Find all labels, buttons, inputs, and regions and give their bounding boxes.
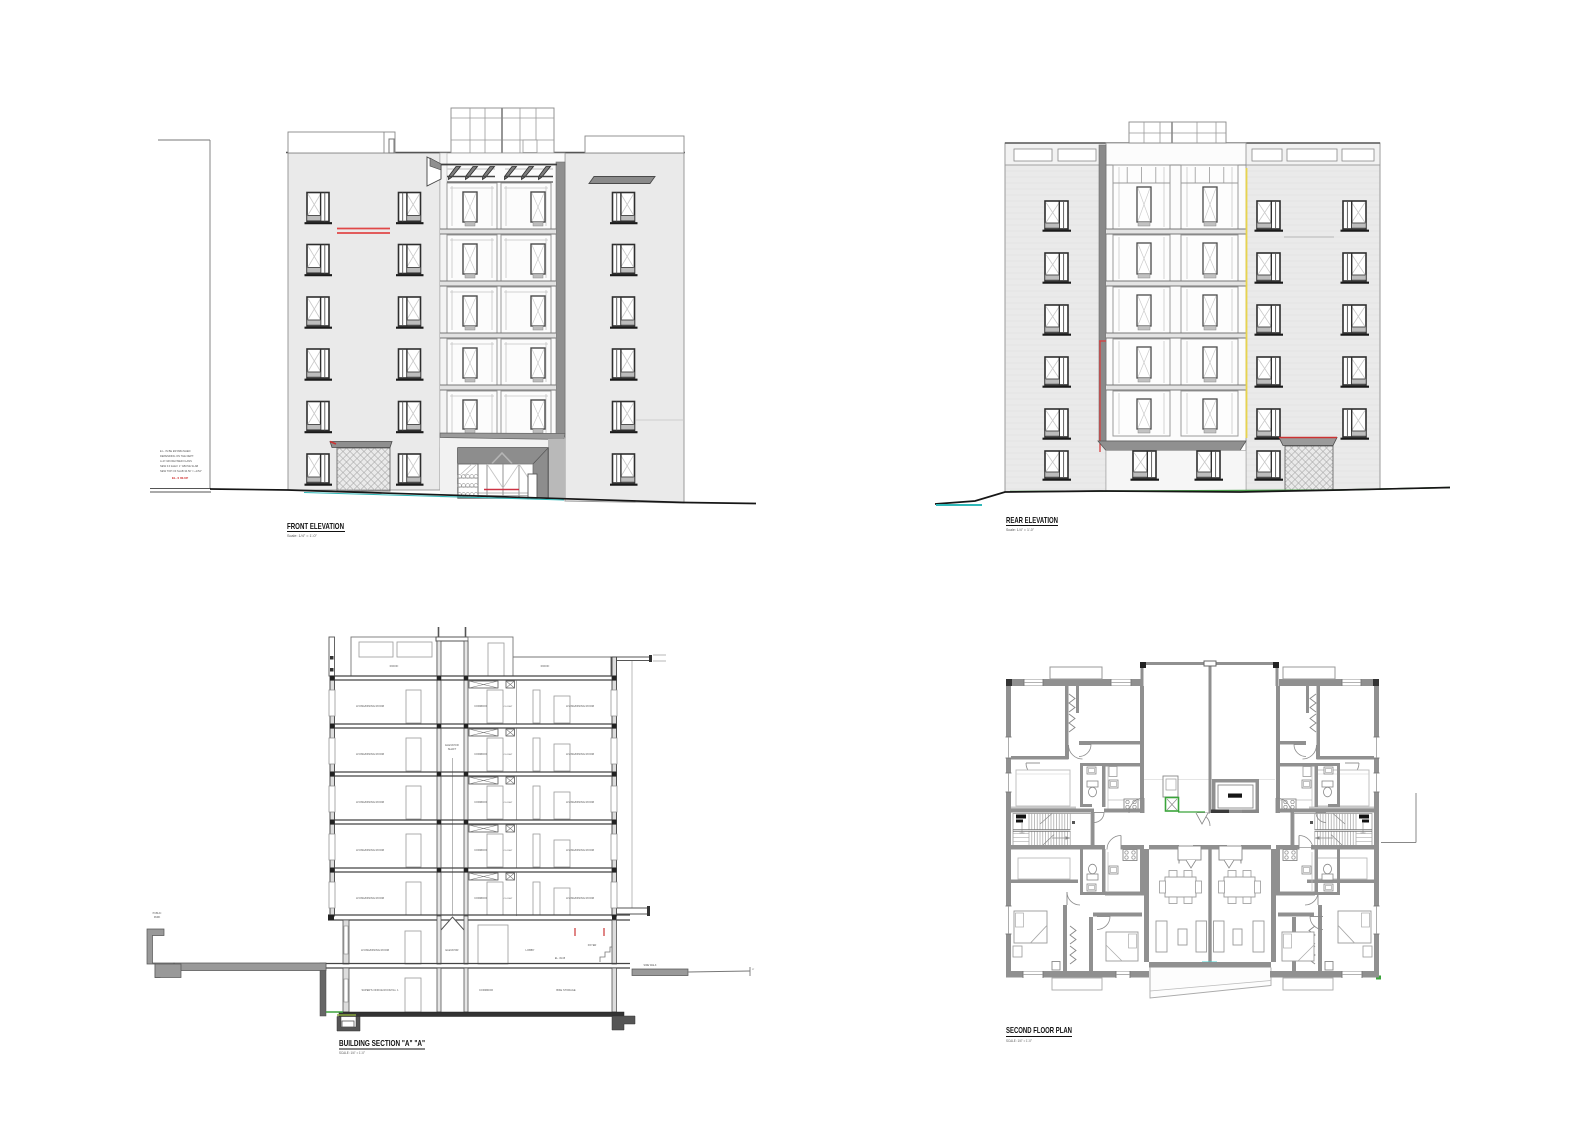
svg-text:FRONT ELEVATION: FRONT ELEVATION — [287, 522, 344, 531]
svg-text:SECOND FLOOR PLAN: SECOND FLOOR PLAN — [1006, 1026, 1072, 1035]
svg-text:SCALE: 1/4" = 1'-0": SCALE: 1/4" = 1'-0" — [339, 1051, 365, 1055]
svg-text:E.L. IN BE ESTABLISHED: E.L. IN BE ESTABLISHED — [160, 449, 191, 453]
svg-text:PUBLIC: PUBLIC — [153, 912, 162, 915]
svg-text:CORRIDOR: CORRIDOR — [474, 849, 488, 852]
svg-text:CORRIDOR: CORRIDOR — [474, 897, 488, 900]
svg-text:CORRIDOR: CORRIDOR — [474, 801, 488, 804]
svg-text:CORRIDOR: CORRIDOR — [474, 705, 488, 708]
svg-text:SIDE WALK: SIDE WALK — [644, 964, 657, 967]
svg-text:LIVING/DINING ROOM: LIVING/DINING ROOM — [566, 848, 595, 852]
svg-text:BUILDING SECTION "A" "A": BUILDING SECTION "A" "A" — [339, 1039, 425, 1048]
svg-text:LIVING/DINING ROOM: LIVING/DINING ROOM — [356, 800, 385, 804]
svg-text:LOBBY: LOBBY — [526, 948, 535, 952]
svg-text:LIVING/DINING ROOM: LIVING/DINING ROOM — [356, 896, 385, 900]
svg-text:LIVING/DINING ROOM: LIVING/DINING ROOM — [356, 848, 385, 852]
svg-text:A-27-946 REVISED FLANS: A-27-946 REVISED FLANS — [160, 459, 192, 463]
svg-text:LIVING/DINING ROOM: LIVING/DINING ROOM — [566, 752, 595, 756]
svg-text:LIVING/DINING ROOM: LIVING/DINING ROOM — [566, 800, 595, 804]
svg-text:ROOF: ROOF — [541, 664, 550, 668]
svg-text:SUPER'S OFFICE ROOM No. 1: SUPER'S OFFICE ROOM No. 1 — [361, 988, 399, 992]
svg-text:ELEVATOR: ELEVATOR — [446, 949, 459, 952]
svg-text:CLOSET: CLOSET — [504, 850, 513, 852]
svg-text:EL. 0 00.00': EL. 0 00.00' — [172, 476, 189, 480]
svg-text:PARK: PARK — [154, 916, 161, 919]
svg-text:NEW TOP OF SLAB 34.50' = +1/54: NEW TOP OF SLAB 34.50' = +1/54" — [160, 469, 202, 473]
svg-text:EL. 49.08: EL. 49.08 — [555, 957, 566, 960]
svg-text:CLOSET: CLOSET — [504, 754, 513, 756]
svg-text:DEPENDING ON THE DEPT.: DEPENDING ON THE DEPT. — [160, 454, 194, 458]
svg-text:Scale: 1/4" = 1'-0": Scale: 1/4" = 1'-0" — [1006, 528, 1035, 532]
svg-text:LIVING/DINING ROOM: LIVING/DINING ROOM — [361, 948, 390, 952]
svg-text:Scale: 1/4" = 1'-0": Scale: 1/4" = 1'-0" — [287, 534, 318, 538]
svg-text:SCALE: 1/4" = 1'-0": SCALE: 1/4" = 1'-0" — [1006, 1039, 1032, 1043]
svg-text:ELEVATOR: ELEVATOR — [445, 743, 459, 747]
svg-text:NEW F.F ELEV. 1" ABOVE SLAB: NEW F.F ELEV. 1" ABOVE SLAB — [160, 464, 198, 468]
svg-text:CORRIDOR: CORRIDOR — [479, 988, 493, 992]
svg-text:REAR ELEVATION: REAR ELEVATION — [1006, 516, 1058, 525]
svg-text:CLOSET: CLOSET — [504, 802, 513, 804]
svg-text:SHAFT: SHAFT — [448, 747, 457, 751]
svg-text:LIVING/DINING ROOM: LIVING/DINING ROOM — [566, 704, 595, 708]
svg-text:CORRIDOR: CORRIDOR — [474, 753, 488, 756]
svg-text:CLOSET: CLOSET — [504, 898, 513, 900]
svg-text:FOYER: FOYER — [588, 944, 597, 947]
svg-text:BIKE STORAGE: BIKE STORAGE — [556, 988, 576, 992]
svg-text:LIVING/DINING ROOM: LIVING/DINING ROOM — [356, 704, 385, 708]
svg-text:CLOSET: CLOSET — [504, 706, 513, 708]
svg-text:ROOF: ROOF — [390, 664, 399, 668]
svg-text:LIVING/DINING ROOM: LIVING/DINING ROOM — [356, 752, 385, 756]
svg-text:LIVING/DINING ROOM: LIVING/DINING ROOM — [566, 896, 595, 900]
